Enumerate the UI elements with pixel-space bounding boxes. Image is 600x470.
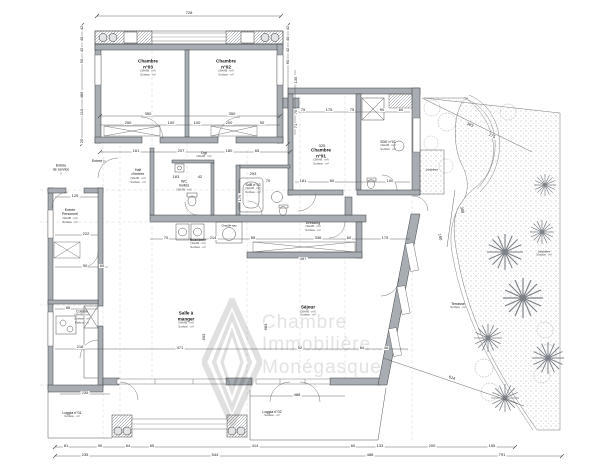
- dimension-label: 325: [318, 144, 327, 148]
- dimension-label: 180: [225, 149, 234, 153]
- dimension-label: 488: [366, 453, 375, 457]
- dimension-label: 60: [286, 59, 290, 65]
- dimension-label: 683: [264, 323, 268, 332]
- dimension-label: 60: [99, 264, 105, 268]
- dimension-label: 90: [82, 264, 88, 268]
- dimension-label: 497: [299, 257, 308, 261]
- dimension-label: 25: [80, 138, 84, 144]
- dimension-label: 71: [294, 123, 298, 129]
- dimension-label: 65: [149, 444, 155, 448]
- dimension-label: 90: [97, 444, 103, 448]
- dimension-label: 175: [325, 108, 334, 112]
- dimension-label: 46: [383, 346, 389, 350]
- dimension-label: 42: [286, 25, 290, 31]
- dimension-label: 161: [132, 149, 141, 153]
- dimension-label: 222: [82, 232, 91, 236]
- dimension-label: 383: [465, 121, 475, 128]
- dimension-label: 155: [488, 444, 497, 448]
- dimension-label: 65: [254, 149, 260, 153]
- dimension-label: 60: [398, 108, 404, 112]
- dimension-label: 350: [228, 112, 237, 116]
- dimension-label: 135: [294, 76, 298, 85]
- dimension-label: 42: [197, 175, 203, 179]
- dimension-label: 486: [80, 91, 84, 100]
- dimension-label: 100: [167, 121, 176, 125]
- dimension-label: 125: [71, 194, 80, 198]
- dimension-label: 414: [251, 444, 260, 448]
- dimension-label: 181: [299, 179, 308, 183]
- dimension-label: 275: [487, 132, 497, 139]
- dimension-label: 52: [297, 346, 303, 350]
- dimension-label: 40: [80, 36, 84, 42]
- dimension-label: 200: [428, 444, 437, 448]
- dimension-label: 614: [447, 375, 457, 382]
- dimension-label: 250: [124, 121, 133, 125]
- dimension-label: 218: [76, 345, 85, 349]
- dimension-label: 90: [379, 108, 385, 112]
- dimension-label: 150: [437, 232, 442, 241]
- dimension-label: 176: [238, 194, 242, 203]
- dimension-label: 42: [80, 47, 84, 53]
- dimension-label: 110: [80, 108, 84, 116]
- dimension-label: 65: [250, 236, 256, 240]
- dimension-label: 308: [459, 205, 464, 214]
- dimension-label: 471: [176, 346, 185, 350]
- dimension-label: 40: [286, 36, 290, 42]
- dimension-label: 791: [498, 453, 507, 457]
- dimension-label: 50: [80, 58, 84, 64]
- dimension-labels: 7283503502501001002005042404250486110254…: [0, 0, 600, 470]
- dimension-label: 603: [202, 333, 206, 342]
- dimension-label: 200: [225, 121, 234, 125]
- dimension-label: 336: [314, 236, 323, 240]
- dimension-label: 75: [294, 109, 298, 115]
- dimension-label: 65: [65, 306, 71, 310]
- floor-plan-page: Chambre Immobilière Monégasque Chambren°…: [0, 0, 600, 470]
- dimension-label: 75: [349, 108, 355, 112]
- dimension-label: 728: [185, 11, 194, 15]
- dimension-label: 42: [286, 47, 290, 53]
- dimension-label: 50: [259, 121, 265, 125]
- dimension-label: 163: [172, 175, 181, 179]
- dimension-label: 214: [209, 236, 218, 240]
- dimension-label: 100: [193, 121, 202, 125]
- dimension-label: 235: [81, 391, 90, 395]
- dimension-label: 64: [359, 346, 365, 350]
- dimension-label: 70: [163, 236, 169, 240]
- dimension-label: 100: [386, 179, 395, 183]
- dimension-label: 133: [376, 444, 385, 448]
- dimension-label: 42: [80, 25, 84, 31]
- dimension-label: 207: [177, 149, 186, 153]
- dimension-label: 70: [265, 179, 271, 183]
- dimension-label: 175: [381, 236, 390, 240]
- dimension-label: 81: [63, 444, 69, 448]
- dimension-label: 60: [350, 444, 356, 448]
- dimension-label: 60: [346, 236, 352, 240]
- dimension-label: 544: [211, 453, 220, 457]
- dimension-label: 64: [125, 444, 131, 448]
- dimension-label: 293: [249, 172, 258, 176]
- dimension-label: 60: [329, 179, 335, 183]
- dimension-label: 488: [293, 393, 302, 397]
- dimension-label: 75: [300, 108, 306, 112]
- dimension-label: 350: [144, 112, 153, 116]
- dimension-label: 235: [81, 453, 90, 457]
